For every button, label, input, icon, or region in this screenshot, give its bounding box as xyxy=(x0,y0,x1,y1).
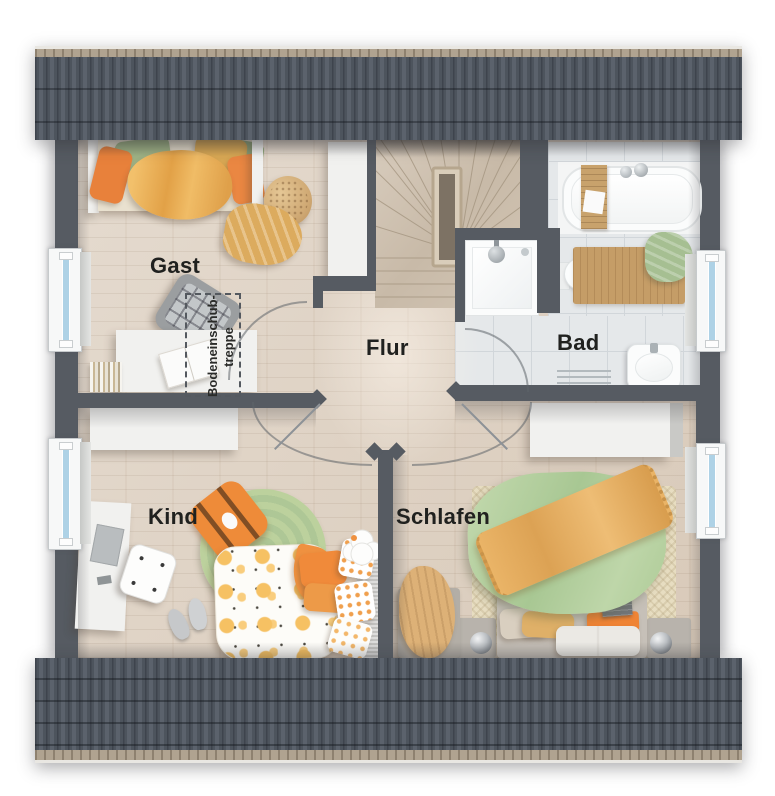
wall-kind-schlafen xyxy=(378,450,393,658)
roof-top xyxy=(35,46,742,140)
guest-bed-frame-right xyxy=(252,138,263,213)
cloud-toy-dot xyxy=(351,535,357,541)
window-sill-bad xyxy=(685,254,696,346)
hall-wardrobe xyxy=(328,142,368,277)
desk-phone xyxy=(97,575,112,585)
bedroom-wardrobe-side xyxy=(670,403,683,457)
wall-stair-bath xyxy=(520,140,548,240)
guest-books xyxy=(90,362,122,392)
shower-drain xyxy=(521,248,529,256)
room-label-flur: Flur xyxy=(366,335,409,361)
roof-bottom xyxy=(35,658,742,763)
shower-head xyxy=(488,246,505,263)
floor-plan: Bodeneinschub- treppe Gast Flur Bad Kind… xyxy=(0,0,775,796)
kids-wardrobe xyxy=(90,408,238,450)
kids-laptop xyxy=(90,524,125,567)
bed-lamp-left xyxy=(470,632,492,654)
window-gast xyxy=(48,248,82,352)
chair-wheels xyxy=(139,556,144,561)
room-label-kind: Kind xyxy=(148,504,198,530)
attic-stairs-label-line1: Bodeneinschub- xyxy=(205,295,220,397)
window-sill-gast xyxy=(80,252,91,346)
window-glass xyxy=(62,446,70,542)
roof-tiles xyxy=(35,57,742,140)
stair-void xyxy=(439,174,455,260)
window-handle-top xyxy=(705,254,719,262)
window-handle-bottom xyxy=(705,340,719,348)
room-label-gast: Gast xyxy=(150,253,200,279)
sink-basin xyxy=(635,353,673,382)
wall-stair-left xyxy=(367,140,376,280)
bed-lamp-right xyxy=(650,632,672,654)
window-glass xyxy=(62,256,70,344)
sink-tap xyxy=(650,343,658,353)
bathtub-caddy xyxy=(581,165,607,229)
roof-eave-strip xyxy=(35,49,742,57)
towel-radiator xyxy=(557,368,611,384)
roof-tiles xyxy=(35,658,742,750)
window-handle-top xyxy=(705,447,719,455)
window-kind xyxy=(48,438,82,550)
tub-faucet xyxy=(634,163,648,177)
window-sill-kind xyxy=(80,442,91,544)
room-label-bad: Bad xyxy=(557,330,599,356)
roof-gutter-strip xyxy=(35,750,742,760)
window-handle-top xyxy=(59,252,73,260)
bath-sink xyxy=(627,344,681,390)
window-sill-schlafen xyxy=(685,447,696,533)
window-glass xyxy=(708,258,716,344)
wall-gast-door-jamb-top xyxy=(313,289,323,308)
caddy-towel xyxy=(583,190,606,215)
window-schlafen xyxy=(696,443,726,539)
window-handle-top xyxy=(59,442,73,450)
attic-stairs-label: Bodeneinschub- treppe xyxy=(205,297,239,397)
window-bad xyxy=(696,250,726,352)
window-handle-bottom xyxy=(59,538,73,546)
window-handle-bottom xyxy=(705,527,719,535)
window-glass xyxy=(708,451,716,531)
window-handle-bottom xyxy=(59,340,73,348)
tub-faucet-knob xyxy=(620,166,632,178)
bed-pillows-white xyxy=(556,626,640,656)
wall-shower-left xyxy=(455,228,465,322)
wall-shower-right xyxy=(537,228,560,313)
roof-edge-line xyxy=(35,760,742,763)
bedroom-wardrobe xyxy=(530,403,670,457)
attic-stairs-label-line2: treppe xyxy=(221,327,236,367)
wall-right-block xyxy=(696,385,720,443)
room-label-schlafen: Schlafen xyxy=(396,504,490,530)
